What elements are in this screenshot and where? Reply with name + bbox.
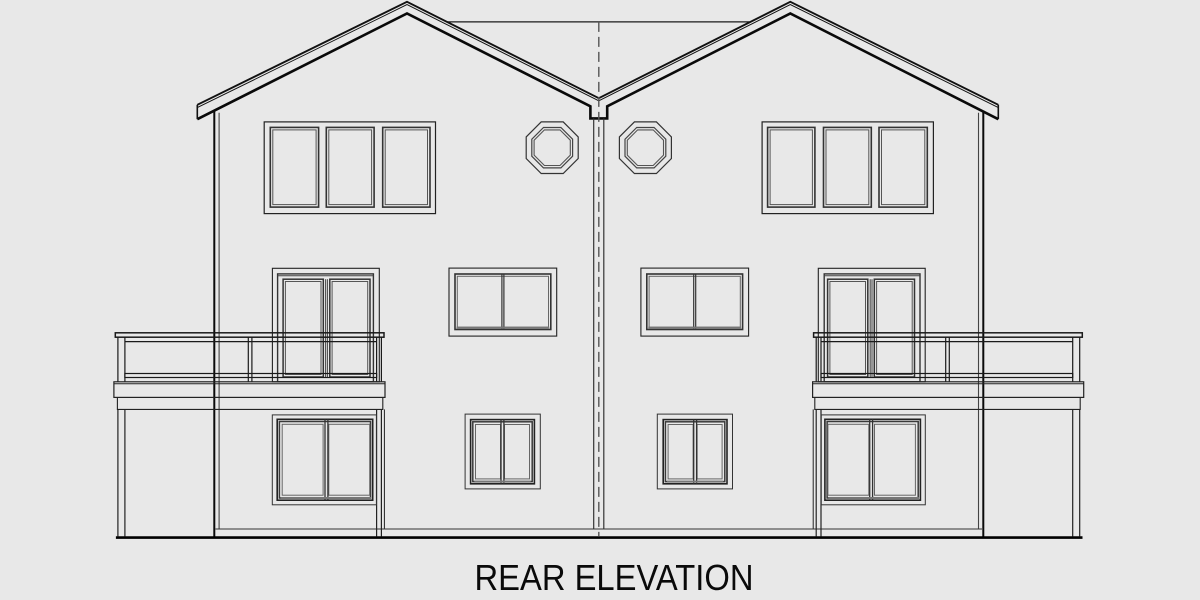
svg-text:REAR ELEVATION: REAR ELEVATION <box>475 557 754 598</box>
